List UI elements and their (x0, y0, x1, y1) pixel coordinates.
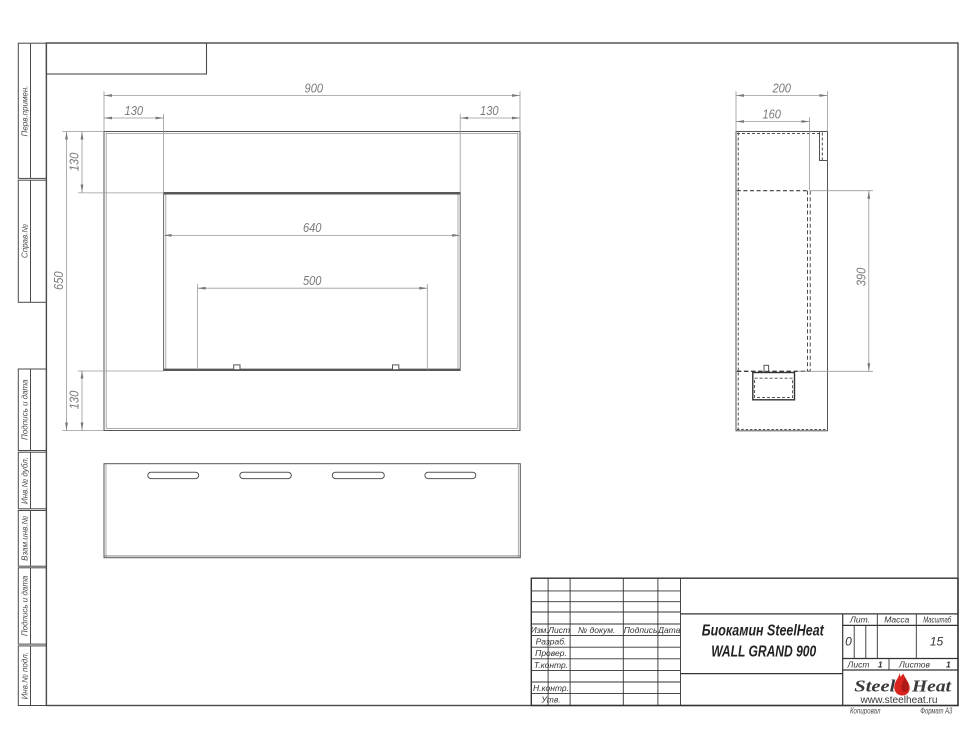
svg-text:Дата: Дата (657, 625, 681, 635)
svg-text:Справ.№: Справ.№ (21, 224, 30, 258)
svg-text:Инв.№ подл.: Инв.№ подл. (21, 652, 30, 699)
svg-text:Провер.: Провер. (535, 648, 567, 658)
svg-text:Разраб.: Разраб. (536, 637, 567, 647)
svg-text:Масштаб: Масштаб (923, 615, 952, 625)
svg-text:Steel: Steel (854, 677, 895, 696)
svg-text:Лист: Лист (547, 625, 570, 635)
svg-text:Утв.: Утв. (540, 695, 560, 705)
svg-text:130: 130 (67, 390, 82, 409)
svg-text:Т.контр.: Т.контр. (534, 660, 568, 670)
svg-text:№ докум.: № докум. (578, 625, 615, 635)
svg-text:WALL GRAND 900: WALL GRAND 900 (711, 644, 816, 661)
svg-text:500: 500 (303, 273, 322, 288)
svg-text:1: 1 (946, 660, 951, 670)
svg-text:160: 160 (762, 107, 781, 122)
svg-text:Подпись и дата: Подпись и дата (21, 575, 30, 636)
svg-text:1: 1 (878, 660, 883, 670)
svg-text:390: 390 (853, 267, 868, 286)
svg-text:Подпись: Подпись (624, 625, 658, 635)
svg-text:Подпись и дата: Подпись и дата (21, 379, 30, 440)
svg-text:130: 130 (125, 103, 144, 118)
svg-text:Лит.: Лит. (849, 615, 870, 625)
svg-text:0: 0 (845, 635, 852, 649)
svg-text:Н.контр.: Н.контр. (533, 683, 569, 693)
svg-text:Перв.примен.: Перв.примен. (21, 86, 30, 137)
svg-text:Изм.: Изм. (531, 625, 549, 635)
svg-text:Взам.инв.№: Взам.инв.№ (21, 515, 30, 560)
svg-text:130: 130 (67, 152, 82, 171)
svg-text:640: 640 (303, 220, 322, 235)
svg-text:130: 130 (480, 103, 499, 118)
svg-text:Масса: Масса (884, 615, 909, 625)
svg-text:Биокамин SteelHeat: Биокамин SteelHeat (702, 623, 825, 640)
svg-text:Heat: Heat (911, 677, 953, 696)
svg-text:Инв.№ дубл.: Инв.№ дубл. (21, 457, 30, 504)
svg-text:Формат А3: Формат А3 (920, 707, 952, 716)
svg-text:Лист: Лист (847, 660, 870, 670)
svg-text:15: 15 (930, 635, 944, 649)
svg-text:200: 200 (772, 81, 792, 96)
svg-text:Листов: Листов (898, 660, 931, 670)
svg-text:900: 900 (305, 81, 324, 96)
svg-text:650: 650 (51, 271, 66, 290)
svg-text:Копировал: Копировал (850, 707, 881, 716)
svg-text:www.steelheat.ru: www.steelheat.ru (859, 695, 937, 706)
